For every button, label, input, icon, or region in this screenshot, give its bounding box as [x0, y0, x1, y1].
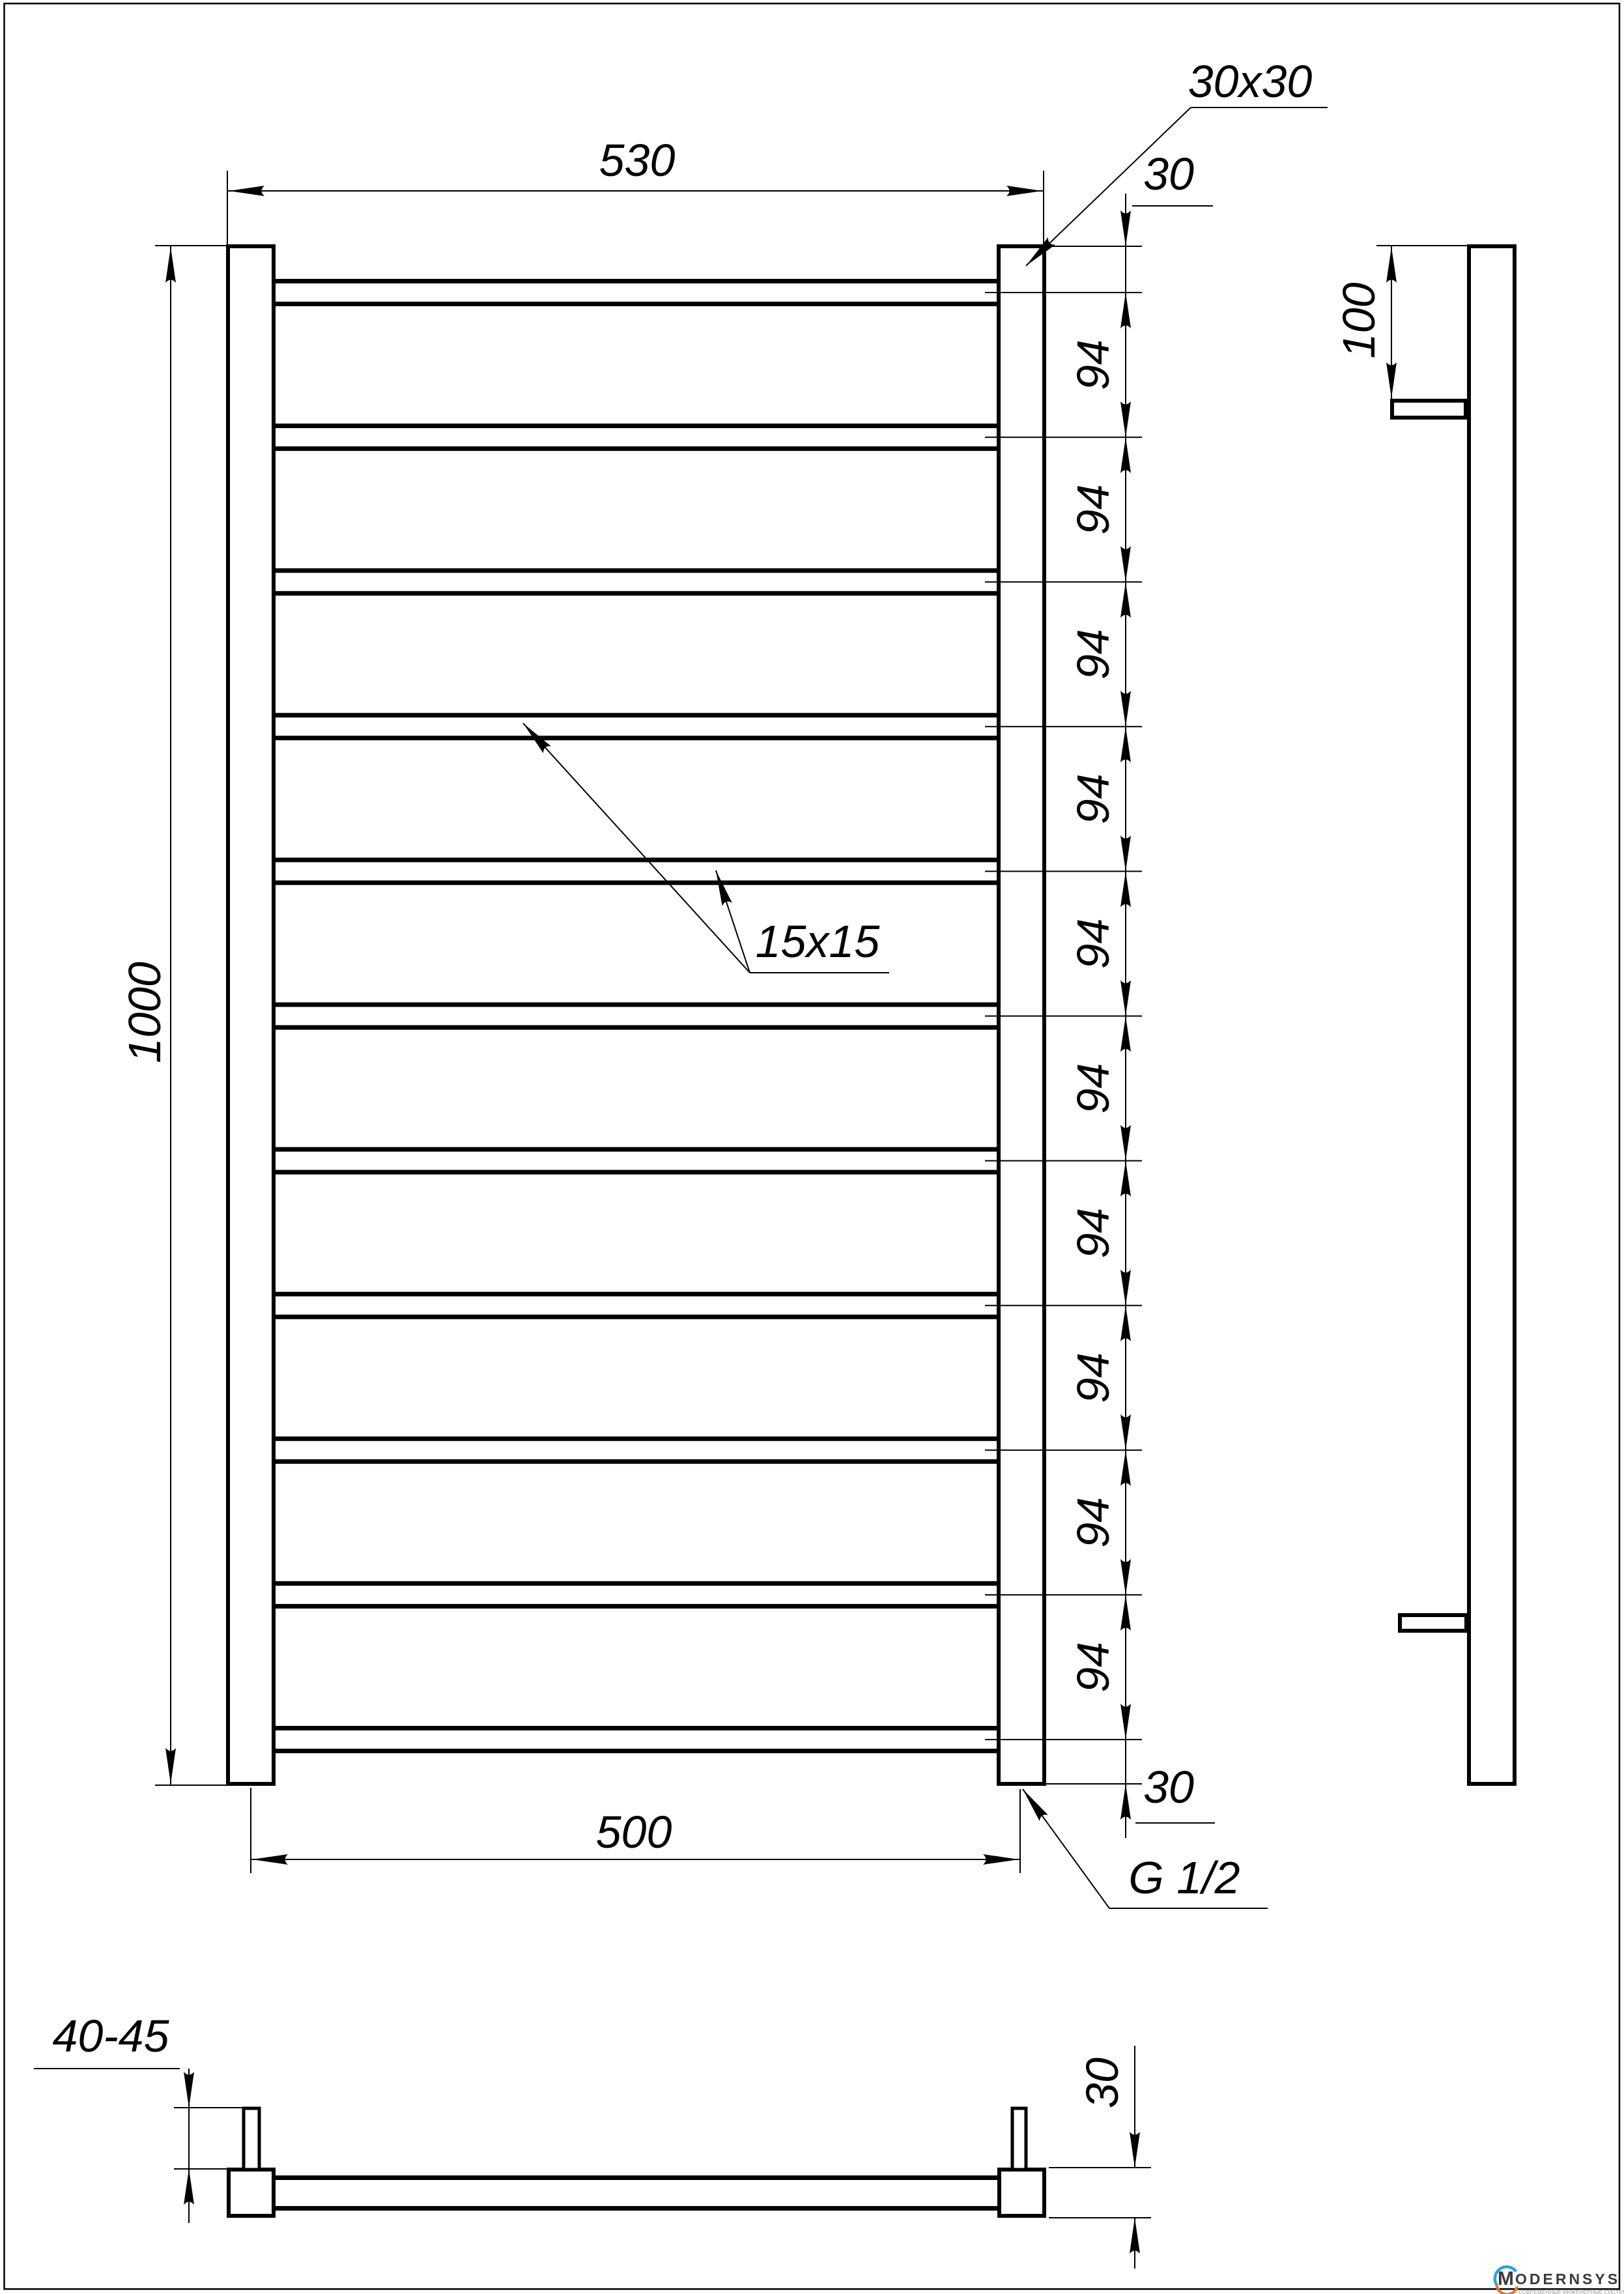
- svg-text:94: 94: [1068, 629, 1118, 680]
- svg-text:94: 94: [1068, 773, 1118, 824]
- svg-text:100: 100: [1333, 283, 1384, 359]
- svg-text:30: 30: [1143, 1762, 1194, 1813]
- svg-text:530: 530: [599, 135, 676, 186]
- svg-text:94: 94: [1068, 1497, 1118, 1548]
- svg-text:40-45: 40-45: [52, 2011, 169, 2061]
- svg-text:G 1/2: G 1/2: [1128, 1852, 1240, 1903]
- svg-text:1000: 1000: [119, 962, 170, 1063]
- svg-text:500: 500: [596, 1807, 672, 1857]
- svg-text:94: 94: [1068, 918, 1118, 969]
- svg-text:30: 30: [1143, 149, 1194, 199]
- svg-text:30: 30: [1077, 2057, 1128, 2108]
- svg-text:M: M: [1498, 2268, 1514, 2289]
- svg-text:15x15: 15x15: [756, 916, 881, 967]
- svg-text:94: 94: [1068, 1642, 1118, 1693]
- svg-text:94: 94: [1068, 339, 1118, 390]
- svg-text:СОВРЕМЕННЫЕ ИНЖЕНЕРНЫЕ СИСТЕ: СОВРЕМЕННЫЕ ИНЖЕНЕРНЫЕ СИСТЕМЫ: [1518, 2289, 1624, 2294]
- svg-text:94: 94: [1068, 1208, 1118, 1259]
- svg-text:94: 94: [1068, 484, 1118, 535]
- svg-text:ODERNSYS: ODERNSYS: [1515, 2271, 1620, 2287]
- svg-text:30x30: 30x30: [1188, 56, 1313, 107]
- svg-text:94: 94: [1068, 1063, 1118, 1114]
- svg-text:94: 94: [1068, 1353, 1118, 1403]
